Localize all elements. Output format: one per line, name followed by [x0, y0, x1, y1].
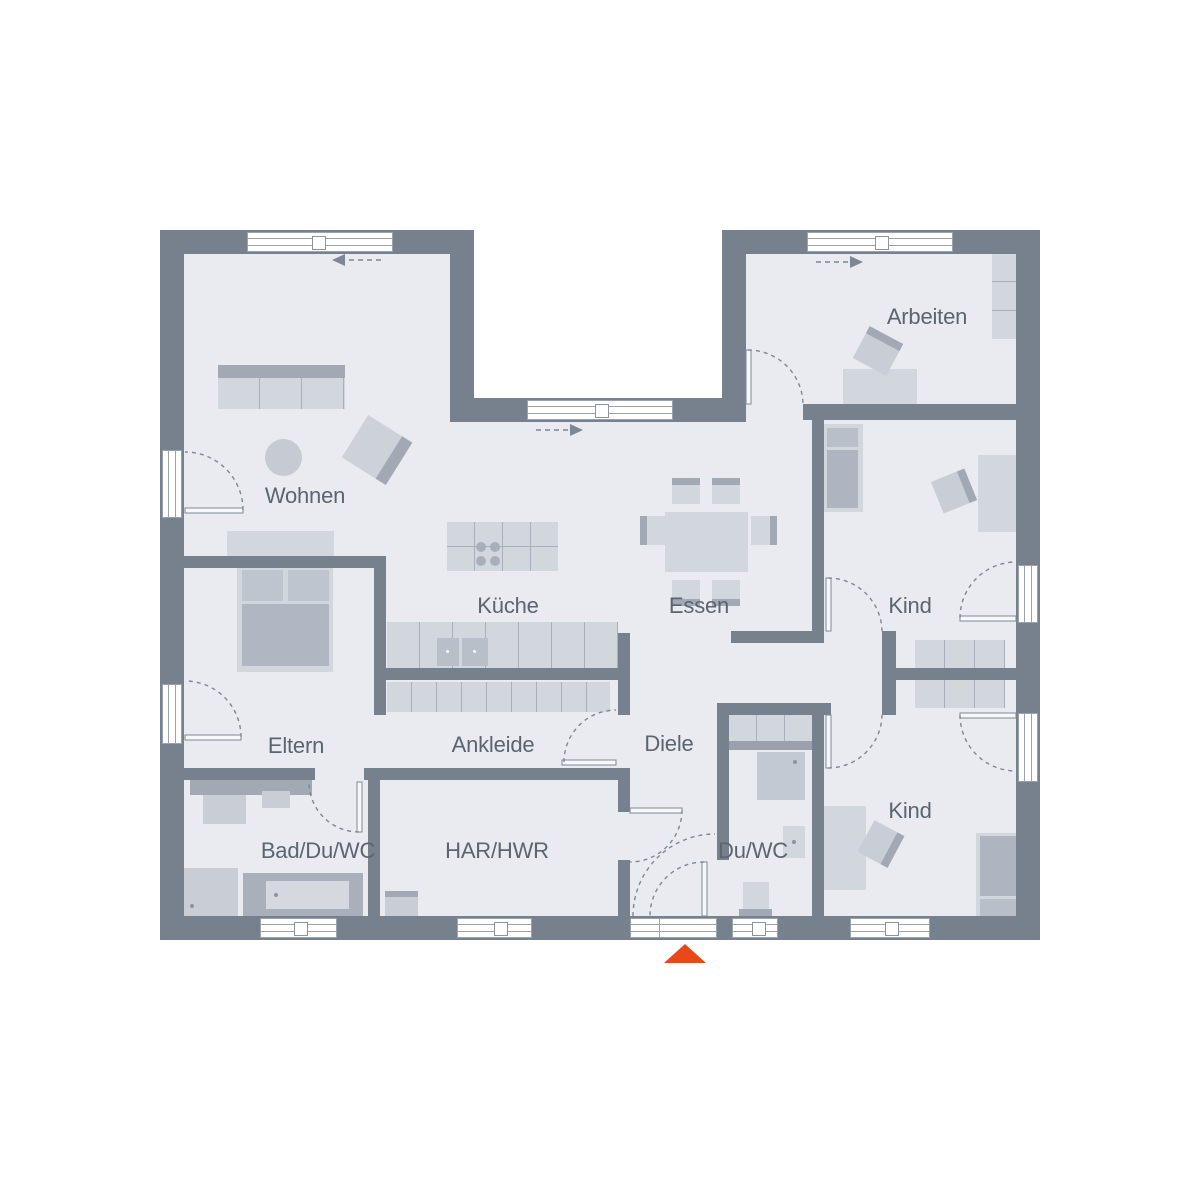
- washbasin: [743, 882, 769, 910]
- dining-chair: [712, 478, 740, 504]
- room-label-duwc: Du/WC: [718, 838, 788, 864]
- room-label-bad: Bad/Du/WC: [261, 838, 375, 864]
- wall-exterior-left: [160, 230, 184, 940]
- room-label-ankleide: Ankleide: [452, 732, 535, 758]
- wardrobe: [915, 640, 1005, 668]
- window-symbol: [595, 404, 609, 418]
- window-notch-sliding: [527, 400, 673, 420]
- vanity-cabinet: [262, 791, 290, 808]
- chair-backrest: [672, 478, 700, 485]
- bed-blanket: [827, 450, 858, 508]
- entrance-door: [630, 918, 717, 938]
- window-living-top: [247, 232, 393, 252]
- bed-blanket: [242, 604, 329, 666]
- room-label-eltern: Eltern: [268, 733, 324, 759]
- sofa: [218, 378, 345, 409]
- wall-kind-divider: [896, 668, 1016, 680]
- room-label-har: HAR/HWR: [445, 838, 549, 864]
- hall-closet-front: [729, 741, 813, 750]
- bed-pillow: [288, 570, 329, 601]
- chair-backrest: [770, 516, 777, 545]
- room-label-arbeiten: Arbeiten: [887, 304, 967, 330]
- wall-duwc-east: [812, 703, 824, 916]
- washbasin: [203, 795, 246, 824]
- round-rug: [265, 439, 302, 476]
- appliance-knob: [473, 650, 476, 653]
- wall-diele-west-mid: [618, 768, 630, 812]
- shower-drain: [190, 904, 194, 908]
- toilet-mark: [792, 840, 796, 844]
- cooktop-burner: [490, 542, 500, 552]
- dining-chair: [751, 516, 777, 545]
- french-door-living-left: [162, 450, 182, 518]
- room-label-kueche: Küche: [477, 593, 538, 619]
- room-label-kind1: Kind: [888, 593, 931, 619]
- wall-notch-right: [722, 230, 746, 422]
- wall-kueche-ankleide: [374, 668, 630, 680]
- french-door-parents-left: [162, 684, 182, 744]
- wall-central-vertical: [812, 404, 824, 643]
- wall-eltern-east: [374, 556, 386, 715]
- window-duwc-bottom: [732, 918, 778, 938]
- utility-appliance: [385, 891, 418, 917]
- wall-essen-diele: [731, 631, 824, 643]
- window-symbol: [494, 922, 508, 936]
- bed-pillow: [242, 570, 283, 601]
- sideboard: [227, 531, 334, 556]
- sofa-backrest: [218, 365, 345, 378]
- window-bath-bottom: [260, 918, 337, 938]
- wardrobe: [915, 680, 1005, 708]
- window-symbol: [875, 236, 889, 250]
- chair-backrest: [640, 516, 647, 545]
- wall-wohnen-eltern: [184, 556, 386, 568]
- room-label-essen: Essen: [669, 593, 729, 619]
- cooktop-burner: [476, 542, 486, 552]
- appliance-top: [385, 891, 418, 897]
- window-symbol: [885, 922, 899, 936]
- hall-closet: [729, 715, 813, 741]
- wall-pillar-kind-doors: [882, 631, 896, 715]
- cooktop-burner: [490, 556, 500, 566]
- window-symbol: [294, 922, 308, 936]
- wall-bad-north-west: [184, 768, 315, 780]
- kitchen-counter: [387, 622, 618, 668]
- office-desk: [843, 369, 917, 408]
- wall-notch-left: [450, 230, 474, 422]
- window-symbol: [752, 922, 766, 936]
- ankleide-wardrobe: [387, 682, 610, 712]
- room-label-kind2: Kind: [888, 798, 931, 824]
- kitchen-sink-unit: [462, 638, 488, 666]
- bed-pillow: [827, 428, 858, 447]
- window-symbol: [312, 236, 326, 250]
- dining-chair: [640, 516, 666, 545]
- shower-tray: [184, 868, 238, 916]
- french-door-child1-right: [1018, 565, 1038, 623]
- desk: [978, 455, 1018, 532]
- window-har-bottom: [457, 918, 532, 938]
- shower-drain: [793, 760, 797, 764]
- wall-ankleide-south: [364, 768, 618, 780]
- entrance-marker-icon: [664, 944, 706, 963]
- room-label-wohnen: Wohnen: [265, 483, 345, 509]
- window-office-top: [807, 232, 953, 252]
- cooktop-burner: [476, 556, 486, 566]
- room-label-diele: Diele: [644, 731, 693, 757]
- shower-tray: [757, 752, 805, 800]
- appliance-knob: [446, 650, 449, 653]
- floor-plan-page: Wohnen Arbeiten Küche Essen Kind Eltern …: [0, 0, 1200, 1200]
- kitchen-appliance: [437, 638, 459, 666]
- kitchen-island: [447, 522, 558, 571]
- french-door-child2-right: [1018, 713, 1038, 782]
- chair-backrest: [712, 478, 740, 485]
- wall-office-south: [803, 404, 1016, 420]
- vanity-counter: [190, 780, 312, 795]
- window-child2-bottom: [850, 918, 930, 938]
- bathtub: [266, 881, 349, 909]
- wall-diele-west-lower: [618, 860, 630, 916]
- dining-chair: [672, 478, 700, 504]
- bathtub-drain: [274, 893, 278, 897]
- dining-table: [665, 512, 748, 572]
- bed-blanket: [980, 836, 1016, 896]
